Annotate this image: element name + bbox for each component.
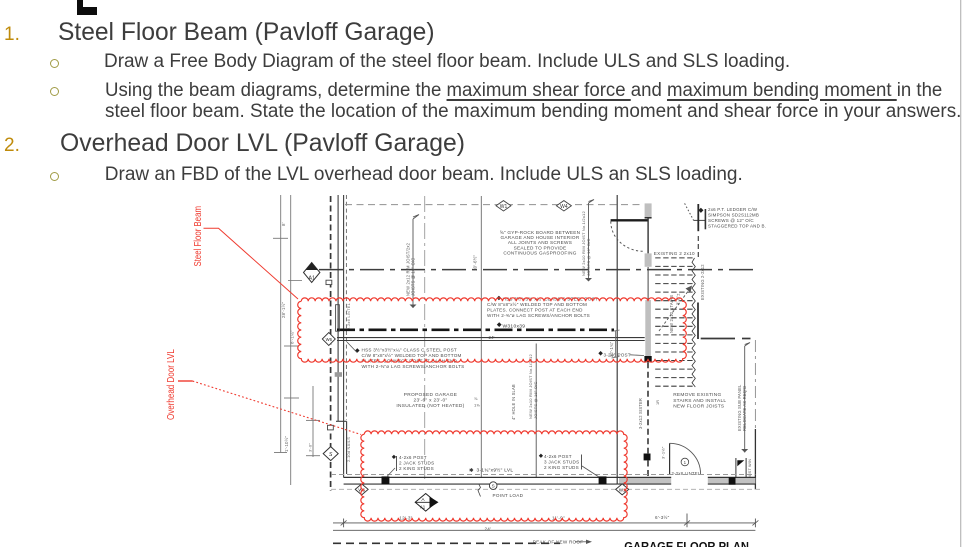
svg-text:JOISTS @ 16" O/C: JOISTS @ 16" O/C (411, 258, 416, 296)
svg-text:NEW FLOOR JOISTS: NEW FLOOR JOISTS (673, 404, 724, 410)
svg-text:A1: A1 (308, 276, 315, 282)
svg-text:JOISTS @ 16" O/C: JOISTS @ 16" O/C (533, 381, 538, 419)
svg-text:SIMPSON SD2S112MB: SIMPSON SD2S112MB (708, 213, 759, 218)
svg-text:3-1¾"x9½" LVL: 3-1¾"x9½" LVL (477, 466, 514, 473)
svg-text:W1: W1 (500, 204, 508, 210)
svg-text:4-2x6 POST: 4-2x6 POST (544, 454, 572, 459)
svg-text:2x6 P.T. LEDGER C/W: 2x6 P.T. LEDGER C/W (708, 207, 758, 212)
svg-text:PROPOSED GARAGE: PROPOSED GARAGE (404, 392, 458, 398)
svg-text:1'-10½": 1'-10½" (284, 436, 289, 452)
svg-text:NEW 2x12 RIM JOIST/2x2: NEW 2x12 RIM JOIST/2x2 (405, 242, 410, 296)
svg-text:3-2x12 SISTER: 3-2x12 SISTER (638, 398, 643, 429)
svg-text:S: S (492, 484, 495, 489)
svg-text:NEW 2x12 STAIRS: NEW 2x12 STAIRS (669, 295, 674, 333)
svg-text:4" HOLE IN SLAB: 4" HOLE IN SLAB (511, 384, 516, 420)
svg-text:1: 1 (684, 460, 687, 465)
svg-text:STAGGERED TOP AND B.: STAGGERED TOP AND B. (708, 224, 766, 229)
svg-text:2-2x6 LINTEL: 2-2x6 LINTEL (346, 302, 351, 330)
svg-text:CONTINUOUS GASPROOFING: CONTINUOUS GASPROOFING (503, 251, 576, 256)
svg-text:WITH 2-⅜"ø LAG SCREWS/ANCHOR B: WITH 2-⅜"ø LAG SCREWS/ANCHOR BOLTS (487, 313, 590, 318)
svg-text:HSS 3½"x3½"x¼" CLASS C STEEL P: HSS 3½"x3½"x¼" CLASS C STEEL POST (362, 347, 457, 353)
svg-text:28'-1½": 28'-1½" (281, 302, 286, 318)
svg-text:Overhead Door LVL: Overhead Door LVL (165, 349, 176, 420)
svg-text:JOISTS @ 16" O/C: JOISTS @ 16" O/C (586, 238, 591, 276)
svg-text:2 KING STUDS: 2 KING STUDS (544, 465, 579, 470)
svg-text:STAIRS AND INSTALL: STAIRS AND INSTALL (673, 398, 726, 404)
svg-text:8': 8' (281, 222, 286, 226)
svg-text:GARAGE FLOOR PLAN: GARAGE FLOOR PLAN (624, 540, 749, 547)
svg-text:EXISTING 2-2x12: EXISTING 2-2x12 (700, 264, 705, 300)
svg-text:1R: 1R (656, 400, 660, 405)
svg-text:✱: ✱ (469, 467, 474, 474)
svg-text:W6: W6 (326, 337, 333, 342)
svg-text:4-2x6 POST: 4-2x6 POST (399, 455, 427, 460)
svg-text:8'-1¼": 8'-1¼" (290, 330, 295, 344)
svg-text:INSULATED (NOT HEATED): INSULATED (NOT HEATED) (396, 403, 464, 409)
svg-text:3'-0": 3'-0" (308, 443, 313, 452)
svg-text:2 KING STUDS: 2 KING STUDS (399, 466, 434, 471)
svg-text:Steel Floor Beam: Steel Floor Beam (192, 206, 203, 266)
svg-text:C/W 8"x8"x½" WELDED TOP AND BO: C/W 8"x8"x½" WELDED TOP AND BOTTOM (362, 352, 462, 358)
svg-text:PLATES. CONNECT POST AT EACH E: PLATES. CONNECT POST AT EACH END (487, 308, 583, 313)
svg-text:3 JACK STUDS: 3 JACK STUDS (544, 459, 579, 464)
svg-text:A1: A1 (420, 505, 426, 510)
svg-text:24': 24' (489, 335, 495, 340)
svg-text:RELOCATE AS REQ'D: RELOCATE AS REQ'D (742, 386, 747, 431)
svg-text:10'-6½": 10'-6½" (472, 255, 477, 271)
svg-text:C/W 8"x8"x½" WELDED TOP AND BO: C/W 8"x8"x½" WELDED TOP AND BOTTOM (487, 301, 587, 307)
svg-text:WITH 2-⅜"ø LAG SCREWS/ANCHOR B: WITH 2-⅜"ø LAG SCREWS/ANCHOR BOLTS (362, 364, 465, 369)
svg-text:2-10d NAILS: 2-10d NAILS (346, 437, 351, 462)
svg-text:2-2x8 LINTEL: 2-2x8 LINTEL (672, 471, 701, 476)
svg-text:SCREWS @ 12" O/C: SCREWS @ 12" O/C (708, 218, 754, 223)
svg-text:W310x39: W310x39 (503, 323, 526, 329)
svg-text:2 JACK STUDS: 2 JACK STUDS (399, 461, 434, 466)
svg-text:1⅞: 1⅞ (474, 403, 480, 408)
svg-text:⅞: ⅞ (474, 396, 478, 401)
svg-text:POINT LOAD: POINT LOAD (493, 493, 524, 498)
svg-text:3'-1½": 3'-1½" (661, 446, 666, 459)
svg-text:REMOVE EXISTING: REMOVE EXISTING (673, 392, 721, 398)
svg-text:6'-3½": 6'-3½" (655, 514, 670, 520)
svg-text:22'-1¾": 22'-1¾" (609, 341, 614, 357)
svg-text:EXISTING 2 2x10: EXISTING 2 2x10 (654, 251, 695, 256)
svg-text:W4: W4 (560, 204, 568, 210)
svg-text:23'-6" x 23'-0": 23'-6" x 23'-0" (413, 398, 447, 404)
